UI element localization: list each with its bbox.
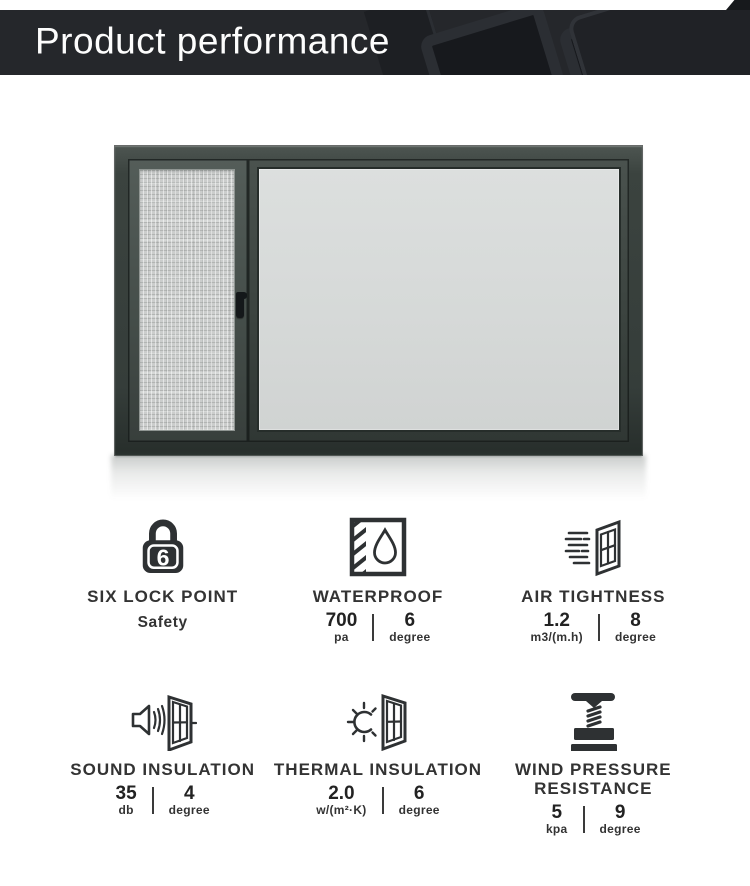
window-handle [236,292,244,318]
air-tightness-icon [561,514,625,578]
value: 2.0 [328,783,354,804]
value: 1.2 [544,610,570,631]
feature-air-tightness: AIR TIGHTNESS 1.2 m3/(m.h) 8 degree [486,514,701,645]
feature-values: 700 pa 6 degree [326,610,431,645]
feature-subtitle: Safety [138,614,188,632]
product-window-image [115,146,642,455]
value-divider [598,614,600,641]
unit-label: degree [615,631,656,644]
feature-sound-insulation: SOUND INSULATION 35 db 4 degree [55,687,270,837]
lock-6-icon: 6 [136,514,190,578]
flyscreen-mesh [139,169,235,431]
product-performance-page: Product performance [0,0,750,886]
feature-title: THERMAL INSULATION [274,760,482,779]
value: 35 [116,783,137,804]
sound-insulation-icon [129,687,197,751]
value-divider [382,787,384,814]
unit-label: degree [389,631,430,644]
value: 4 [184,783,195,804]
feature-waterproof: WATERPROOF 700 pa 6 degree [270,514,485,645]
unit-label: degree [600,823,641,836]
svg-text:6: 6 [156,544,169,570]
floor-reflection [111,455,646,517]
value-divider [372,614,374,641]
window-inner [128,159,629,442]
value: 9 [615,802,626,823]
feature-title: SIX LOCK POINT [87,587,238,606]
unit-label: m3/(m.h) [531,631,583,644]
thermal-insulation-icon [345,687,411,751]
page-title: Product performance [35,20,390,62]
feature-title: WIND PRESSURE RESISTANCE [509,760,677,798]
unit-label: degree [399,804,440,817]
window-outer-frame [115,146,642,455]
value: 700 [326,610,358,631]
performance-features: 6 SIX LOCK POINT Safety [55,514,701,837]
profile-shape-icon [566,10,750,75]
value-divider [152,787,154,814]
unit-label: w/(m²·K) [316,804,366,817]
feature-title: WATERPROOF [313,587,444,606]
feature-values: 35 db 4 degree [116,783,210,818]
feature-values: 1.2 m3/(m.h) 8 degree [531,610,657,645]
feature-wind-pressure-resistance: WIND PRESSURE RESISTANCE 5 kpa 9 degree [486,687,701,837]
unit-label: kpa [546,823,568,836]
flyscreen-door-panel [128,159,248,442]
header-banner: Product performance [0,10,750,75]
feature-values: 2.0 w/(m²·K) 6 degree [316,783,440,818]
waterproof-icon [347,514,409,578]
value: 8 [630,610,641,631]
feature-thermal-insulation: THERMAL INSULATION 2.0 w/(m²·K) 6 degree [270,687,485,837]
fixed-glass-panel [248,159,629,442]
value: 6 [414,783,425,804]
feature-title: SOUND INSULATION [70,760,255,779]
feature-six-lock-point: 6 SIX LOCK POINT Safety [55,514,270,645]
wind-pressure-icon [563,687,623,751]
corner-decoration [726,0,750,10]
value: 6 [405,610,416,631]
glass-pane [257,167,621,432]
unit-label: pa [334,631,349,644]
value: 5 [551,802,562,823]
feature-values: 5 kpa 9 degree [546,802,641,837]
value-divider [583,806,585,833]
unit-label: db [118,804,133,817]
feature-title: AIR TIGHTNESS [521,587,665,606]
profile-shape-icon [418,10,566,75]
aluminium-profile-art [410,10,750,75]
unit-label: degree [169,804,210,817]
